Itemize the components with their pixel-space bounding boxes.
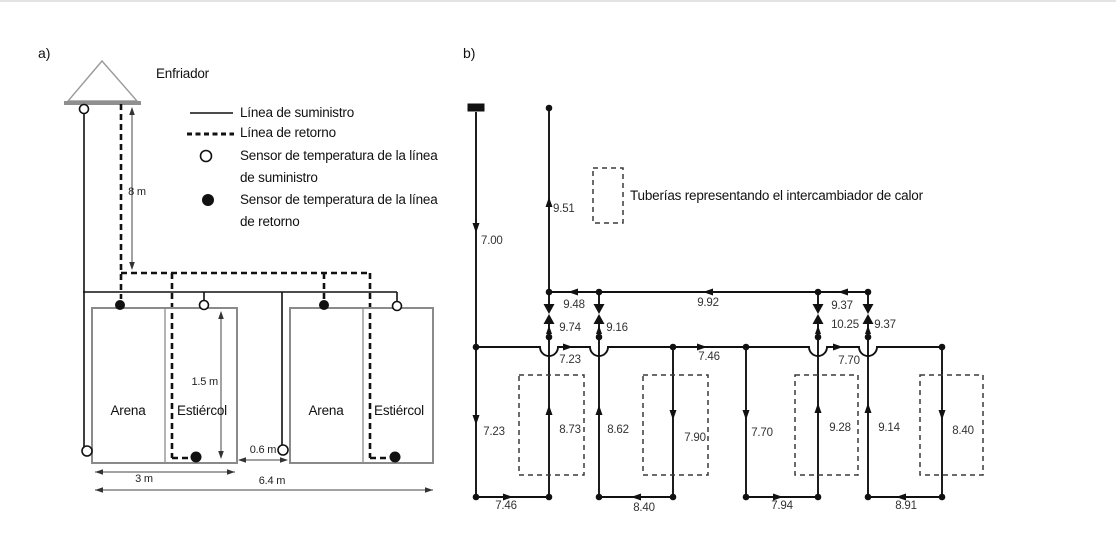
flow-col-down-1: 7.23 (479, 426, 509, 438)
flow-arrow-up-icon (546, 405, 553, 415)
flow-bottom-4: 8.91 (891, 500, 921, 512)
flow-return-seg-left: 9.48 (559, 299, 589, 311)
legend-supply-sensor-label2: de suministro (240, 171, 318, 185)
flow-bottom-3: 7.94 (767, 500, 797, 512)
return-sensor-tank1-top (115, 300, 125, 310)
flow-valve-4: 9.37 (870, 319, 900, 331)
junction-dot (670, 344, 677, 351)
flow-arrow-right-icon (563, 344, 573, 351)
flow-arrows (473, 197, 946, 501)
piping-diagram-canvas (0, 0, 1116, 549)
flow-return-seg-right: 9.37 (827, 300, 857, 312)
junction-dot (815, 494, 822, 501)
flow-arrow-left-icon (838, 289, 848, 296)
legend-supply-line-label: Línea de suministro (240, 106, 354, 120)
reservoir-symbol (468, 104, 485, 112)
figure-page: a) b) Enfriador Línea de suministro Líne… (0, 0, 1116, 549)
dimension-arrowheads (95, 107, 433, 493)
heat-exchanger-box (643, 375, 708, 475)
junction-dot (546, 105, 553, 112)
dim-0-6m-label: 0.6 m (243, 445, 283, 457)
junction-dot (670, 494, 677, 501)
panel-b-diagram (468, 104, 984, 501)
supply-sensor-tank1-bottom (82, 446, 92, 456)
dim-arrow-icon (129, 107, 135, 115)
junction-dot (546, 289, 553, 296)
dim-arrow-icon (425, 487, 433, 493)
junction-dot (743, 344, 750, 351)
dim-arrow-icon (218, 451, 224, 459)
junction-dot (865, 494, 872, 501)
legend-return-sensor-label2: de retorno (240, 215, 300, 229)
junction-dot (815, 289, 822, 296)
flow-arrow-left-icon (631, 494, 641, 501)
valve-icon (813, 314, 824, 324)
flow-return-seg-mid: 9.92 (693, 297, 723, 309)
junction-dot (743, 494, 750, 501)
junction-dot (939, 494, 946, 501)
flow-arrow-up-icon (815, 403, 822, 413)
flow-arrow-right-icon (833, 344, 843, 351)
tank2-estiercol-label: Estiércol (364, 404, 434, 418)
flow-bottom-1: 7.46 (491, 500, 521, 512)
supply-piping (83, 113, 397, 449)
tank1-estiercol-label: Estiércol (167, 404, 237, 418)
dim-6-4m-label: 6.4 m (252, 476, 292, 488)
dim-arrow-icon (280, 457, 288, 463)
flow-valve-1: 9.74 (555, 322, 585, 334)
flow-supply-seg-2: 7.46 (694, 351, 724, 363)
flow-supply-seg-3: 7.70 (834, 355, 864, 367)
legend-heat-exchanger-box (593, 168, 623, 223)
junction-dot (546, 334, 553, 341)
return-sensor-tank1-bottom (191, 452, 202, 463)
supply-sensor-cooler (80, 105, 89, 114)
flow-col-up-4: 9.14 (874, 422, 904, 434)
valve-icon (544, 304, 555, 314)
cooler-label: Enfriador (156, 67, 209, 81)
dim-arrow-icon (129, 262, 135, 270)
valve-icon (863, 304, 874, 314)
flow-arrow-left-icon (568, 289, 578, 296)
valve-icon (813, 304, 824, 314)
panel-b-tag: b) (463, 46, 475, 61)
valve-icon (594, 304, 605, 314)
junction-dot (596, 494, 603, 501)
return-sensor-tank2-top (319, 300, 329, 310)
flow-valve-3: 10.25 (827, 319, 863, 331)
flow-arrow-down-icon (670, 410, 677, 420)
flow-valve-2: 9.16 (602, 322, 632, 334)
junction-dot (865, 289, 872, 296)
legend-filled-circle-icon (202, 194, 214, 206)
dim-8m-label: 8 m (125, 187, 149, 199)
junction-dot (865, 334, 872, 341)
flow-arrow-left-icon (703, 289, 713, 296)
flow-arrow-down-icon (473, 223, 480, 233)
junction-dot (546, 494, 553, 501)
dim-arrow-icon (218, 311, 224, 319)
return-sensor-tank2-bottom (390, 452, 401, 463)
legend-heat-exchanger-label: Tuberías representando el intercambiador… (630, 189, 923, 203)
flow-supply-seg-1: 7.23 (555, 354, 585, 366)
panel-a-tag: a) (38, 46, 50, 61)
dim-3m-label: 3 m (124, 474, 164, 486)
junction-dot (473, 344, 480, 351)
flow-col-up-1: 8.73 (555, 424, 585, 436)
flow-arrow-down-icon (473, 415, 480, 425)
flow-arrow-up-icon (596, 405, 603, 415)
flow-col-down-2: 7.90 (680, 432, 710, 444)
junction-dot (939, 344, 946, 351)
flow-bottom-2: 8.40 (629, 502, 659, 514)
dim-arrow-icon (238, 457, 246, 463)
junction-dot (473, 494, 480, 501)
flow-arrow-up-icon (546, 326, 552, 335)
flow-col-up-2: 8.62 (603, 424, 633, 436)
dim-arrow-icon (227, 469, 235, 475)
dim-1-5m-label: 1.5 m (180, 377, 218, 389)
flow-arrow-down-icon (743, 410, 750, 420)
junction-dot (596, 334, 603, 341)
tank2-arena-label: Arena (291, 404, 361, 418)
flow-arrow-down-icon (939, 410, 946, 420)
flow-arrow-up-icon (865, 403, 872, 413)
junction-dot (815, 334, 822, 341)
dimension-lines (95, 109, 433, 490)
flow-col-down-3: 7.70 (747, 427, 777, 439)
dim-arrow-icon (95, 469, 103, 475)
legend-a-samples (187, 113, 234, 206)
tanks (92, 308, 433, 463)
supply-sensor-tank1-top (200, 301, 209, 310)
flow-arrow-up-icon (815, 326, 821, 335)
flow-return-outlet: 9.51 (553, 203, 583, 215)
legend-supply-sensor-label: Sensor de temperatura de la línea (240, 149, 438, 163)
flow-arrow-up-icon (546, 197, 553, 207)
flow-arrow-right-icon (697, 344, 707, 351)
supply-sensor-tank2-top (393, 302, 402, 311)
cooler-triangle (68, 61, 137, 101)
flow-supply-inlet: 7.00 (481, 235, 511, 247)
dim-arrow-icon (95, 487, 103, 493)
flow-col-down-4: 8.40 (948, 425, 978, 437)
tank2-outline (290, 308, 433, 463)
tank1-arena-label: Arena (93, 404, 163, 418)
valve-icon (544, 314, 555, 324)
flow-col-up-3: 9.28 (825, 422, 855, 434)
junction-dot (596, 289, 603, 296)
legend-return-sensor-label: Sensor de temperatura de la línea (240, 193, 438, 207)
legend-return-line-label: Línea de retorno (240, 126, 336, 140)
legend-open-circle-icon (201, 151, 212, 162)
